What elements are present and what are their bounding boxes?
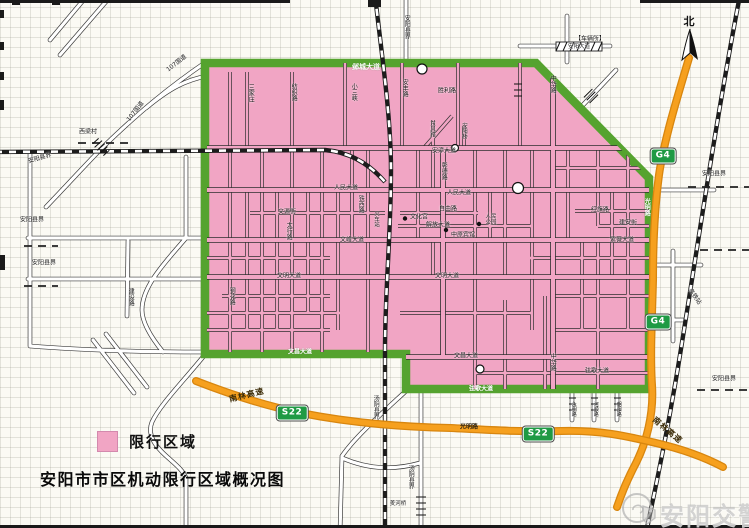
- s22-shield: S22: [277, 406, 308, 421]
- legend: 限行区域: [97, 431, 197, 452]
- watermark-text: 安阳交警: [660, 496, 749, 528]
- s22-shield: S22: [523, 427, 554, 442]
- map-title: 安阳市市区机动限行区域概况图: [40, 466, 285, 490]
- g4-shield: G4: [651, 149, 676, 164]
- compass-north-label: 北: [684, 13, 695, 29]
- police-badge-watermark: [623, 494, 655, 524]
- anyang-restriction-map: 邺城大道文昌大道弦歌大道光明路107国道107国道西梁村安阳县界安阳县界安阳县界…: [0, 0, 749, 528]
- g4-shield: G4: [646, 315, 671, 330]
- legend-restricted-label: 限行区域: [129, 431, 197, 452]
- legend-restricted-swatch: [97, 431, 118, 452]
